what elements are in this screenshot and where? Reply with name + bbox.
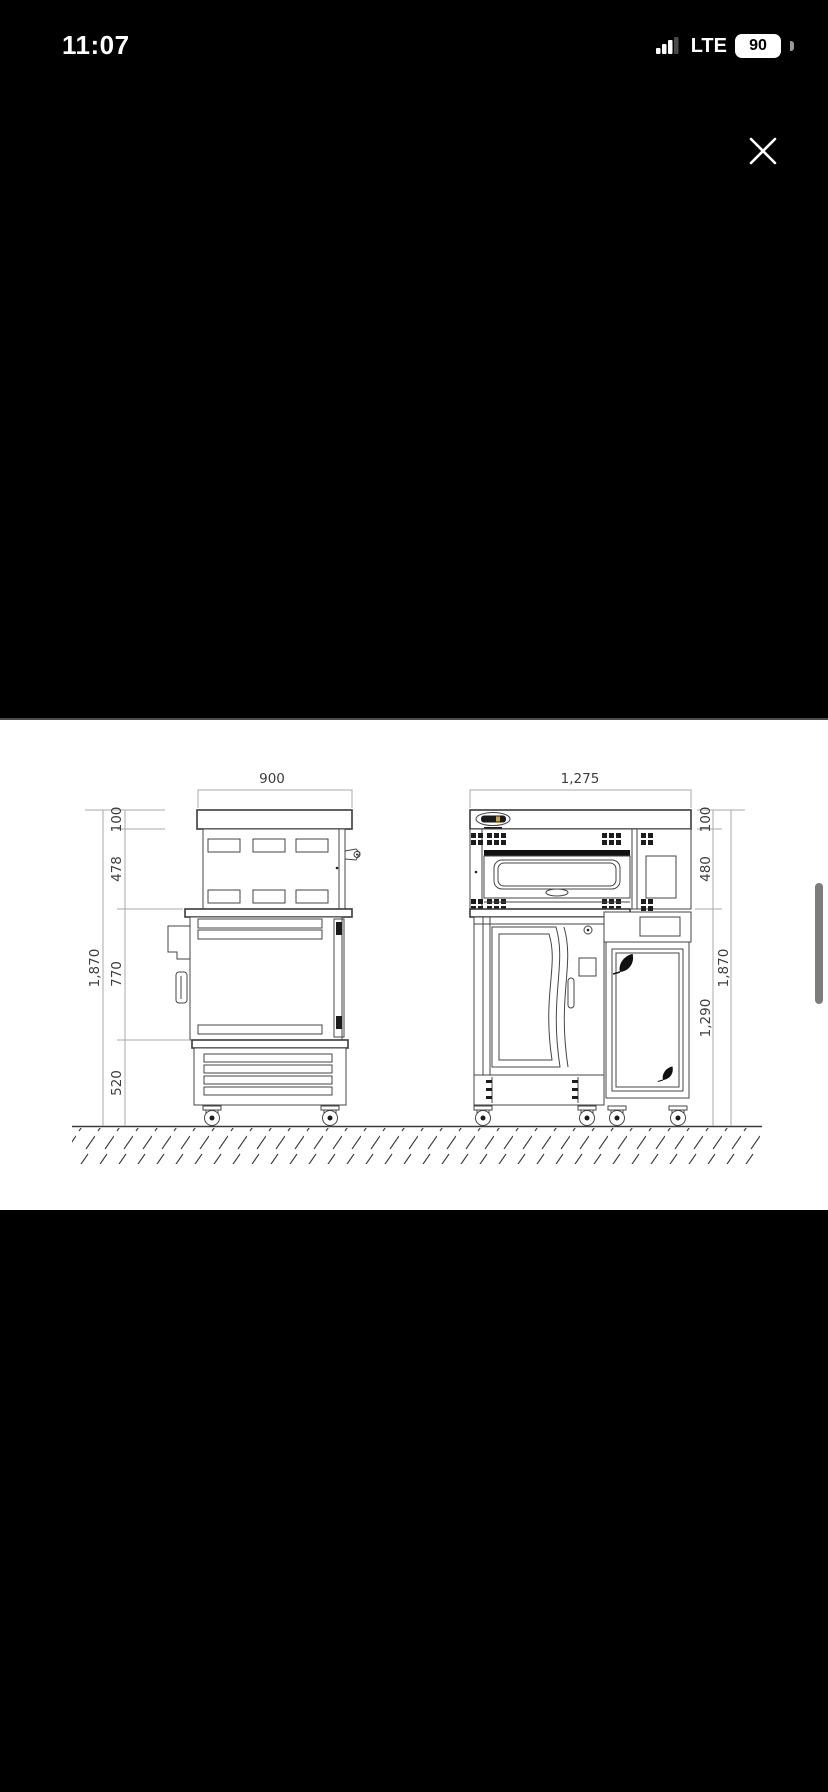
dim-front-oven: 480 [698,856,714,882]
dim-front-top: 100 [698,807,714,833]
drawing-image[interactable]: 900 [0,718,828,1210]
technical-drawing-svg: 900 [0,720,828,1210]
scrollbar-thumb[interactable] [815,883,823,1004]
dim-side-hood: 100 [109,807,125,833]
dim-side-middle: 770 [109,961,125,987]
phone-screen: 11:07 LTE 90 [0,0,828,1792]
dim-side-upper: 478 [109,856,125,882]
battery-icon: 90 [735,34,781,58]
network-type-label: LTE [691,35,727,58]
dim-front-lower: 1,290 [698,999,714,1038]
battery-tip [790,41,794,51]
signal-strength-icon [656,37,683,55]
status-icons: LTE 90 [656,34,794,58]
dim-front-total: 1,870 [716,949,732,988]
status-bar: 11:07 LTE 90 [0,0,828,100]
dim-side-total: 1,870 [87,949,103,988]
close-icon [738,126,788,176]
side-view: 900 [85,771,360,1126]
status-time: 11:07 [62,30,130,61]
dim-front-width: 1,275 [561,771,600,787]
battery-percent: 90 [749,37,767,55]
close-button[interactable] [738,126,788,176]
dim-side-base: 520 [109,1070,125,1096]
front-view: 1,275 [470,771,745,1126]
ground-hatch [72,1127,762,1165]
proofer-door-handle [568,978,574,1008]
dim-side-width: 900 [259,771,285,787]
